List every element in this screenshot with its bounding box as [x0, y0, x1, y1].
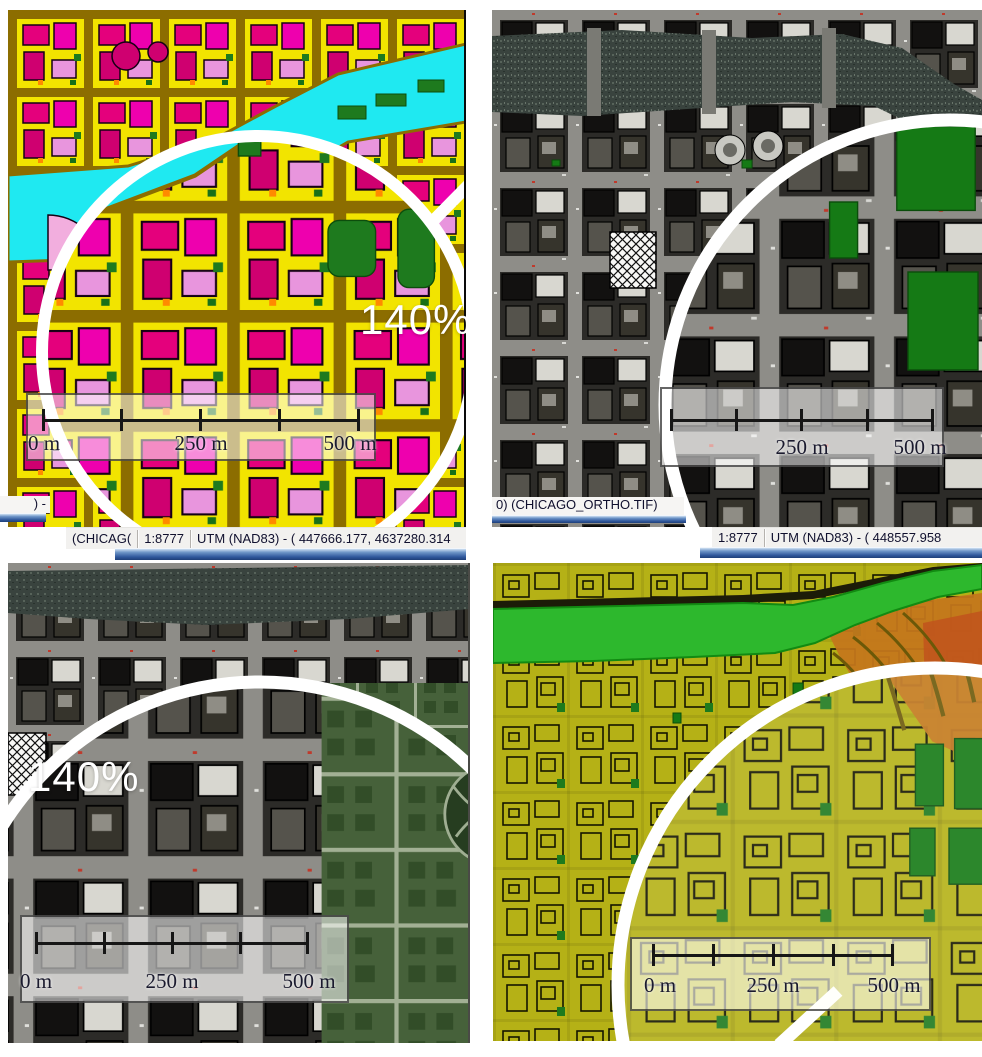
- window-edge-bar-fragment: [0, 513, 46, 522]
- zoom-percent-badge: 140%: [28, 753, 139, 801]
- scale-label-250m: 250 m: [775, 435, 828, 460]
- zoom-percent-badge: 140%: [360, 296, 466, 344]
- scale-label-0m: 0 m: [28, 431, 60, 456]
- scale-bar: 0 m 250 m 500 m: [630, 937, 931, 1011]
- scale-label-250m: 250 m: [174, 431, 227, 456]
- status-coordinates: UTM (NAD83) - ( 447666.177, 4637280.314: [190, 530, 457, 548]
- status-bar-fragment: 0) (CHICAGO_ORTHO.TIF): [492, 497, 684, 515]
- window-edge-bar: [700, 547, 982, 558]
- scale-bar-line: [35, 942, 309, 945]
- panel-bottom-left-orthophoto[interactable]: 140% 0 m 250 m 500 m: [8, 563, 470, 1043]
- scale-bar: 0 m 250 m 500 m: [20, 915, 349, 1003]
- scale-bar-line: [42, 419, 360, 422]
- panel-bottom-right-elevation-map[interactable]: 0 m 250 m 500 m: [493, 563, 982, 1041]
- crosshatch-building: [610, 232, 656, 288]
- status-map-scale: 1:8777: [137, 530, 190, 548]
- scale-label-500m: 500 m: [893, 435, 946, 460]
- status-map-scale: 1:8777: [712, 529, 764, 547]
- scale-bar: 250 m 500 m: [660, 387, 944, 467]
- panel-top-left-landcover-map[interactable]: 0 m 250 m 500 m 140% (CHICAG( 1:8777 UTM…: [8, 10, 466, 560]
- scale-label-500m: 500 m: [867, 973, 920, 998]
- scale-bar-line: [652, 954, 894, 957]
- scale-label-500m: 500 m: [323, 431, 376, 456]
- screenshot-collage: 0 m 250 m 500 m 140% (CHICAG( 1:8777 UTM…: [0, 0, 982, 1057]
- scale-label-250m: 250 m: [746, 973, 799, 998]
- scale-label-0m: 0 m: [644, 973, 676, 998]
- status-layer-name: (CHICAG(: [66, 530, 137, 548]
- status-bar-fragment: ) -: [0, 496, 50, 513]
- status-bar: 1:8777 UTM (NAD83) - ( 448557.958: [712, 527, 982, 548]
- scale-label-500m: 500 m: [282, 969, 335, 994]
- scale-label-250m: 250 m: [145, 969, 198, 994]
- status-coordinates: UTM (NAD83) - ( 448557.958: [764, 529, 948, 547]
- window-edge-bar-fragment: [492, 515, 686, 523]
- scale-bar-line: [670, 419, 934, 422]
- panel-top-right-orthophoto[interactable]: 250 m 500 m 0) (CHICAGO_ORTHO.TIF) 1:877…: [492, 10, 982, 560]
- window-edge-bar: [115, 548, 466, 560]
- scale-label-0m: 0 m: [20, 969, 52, 994]
- status-bar: (CHICAG( 1:8777 UTM (NAD83) - ( 447666.1…: [66, 527, 466, 549]
- scale-bar: 0 m 250 m 500 m: [26, 393, 376, 461]
